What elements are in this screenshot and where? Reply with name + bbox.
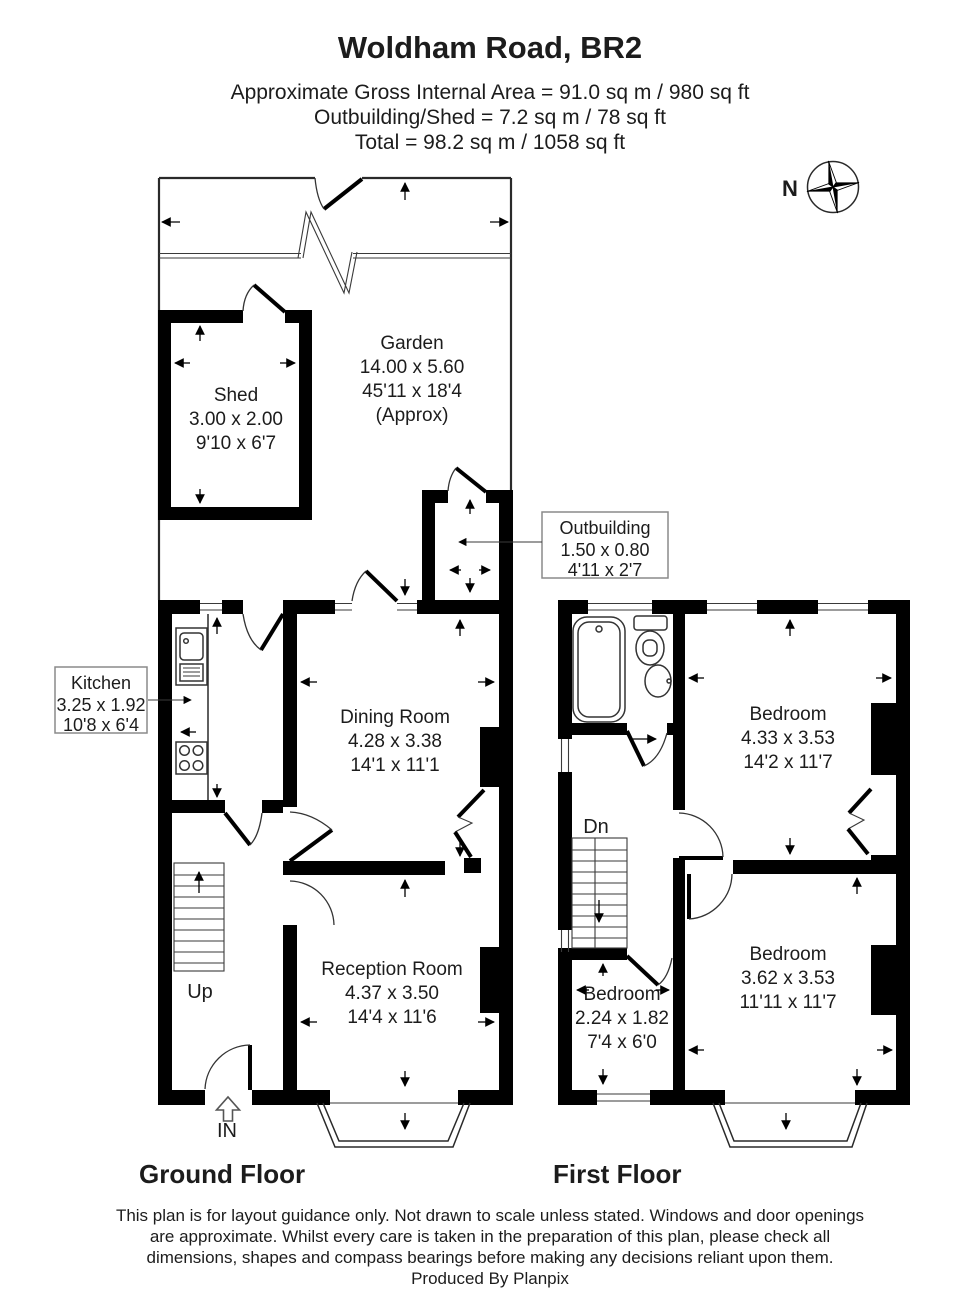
garden-name: Garden — [380, 333, 443, 354]
bathtub-icon — [573, 617, 625, 722]
bedroom-front-name: Bedroom — [749, 704, 826, 725]
dining-room-metric: 4.28 x 3.38 — [348, 731, 442, 752]
chimney-breast — [871, 945, 896, 1015]
first-floor-labels: Bedroom 4.33 x 3.53 14'2 x 11'7 Bedroom … — [575, 704, 837, 1053]
stairs-up-label: Up — [187, 981, 213, 1003]
chimney-breast — [871, 703, 896, 775]
outbuilding-metric: 1.50 x 0.80 — [560, 540, 649, 560]
ground-floor-labels: Dining Room 4.28 x 3.38 14'1 x 11'1 Rece… — [187, 707, 463, 1142]
shed-name: Shed — [214, 385, 258, 406]
gross-area-line: Approximate Gross Internal Area = 91.0 s… — [231, 81, 750, 104]
compass-icon: N — [782, 156, 864, 217]
dining-room-imperial: 14'1 x 11'1 — [350, 755, 439, 776]
bathroom-fixtures — [573, 616, 671, 722]
header: Woldham Road, BR2 Approximate Gross Inte… — [231, 30, 750, 154]
bedroom-back-name: Bedroom — [749, 944, 826, 965]
kitchen-metric: 3.25 x 1.92 — [56, 695, 145, 715]
garden-imperial: 45'11 x 18'4 — [362, 381, 462, 402]
disclaimer-line-4: Produced By Planpix — [411, 1269, 569, 1288]
basin-icon — [645, 665, 671, 697]
hob-icon — [176, 742, 207, 774]
first-floor-stairs — [572, 838, 627, 948]
sink-icon — [176, 628, 207, 685]
bedroom-small-name: Bedroom — [583, 984, 660, 1005]
bedroom-back-imperial: 11'11 x 11'7 — [739, 992, 836, 1013]
ground-floor-label: Ground Floor — [139, 1159, 305, 1189]
kitchen-imperial: 10'8 x 6'4 — [63, 715, 139, 735]
floorplan-page: Woldham Road, BR2 Approximate Gross Inte… — [0, 0, 980, 1313]
toilet-icon — [634, 616, 667, 665]
first-floor-label: First Floor — [553, 1159, 682, 1189]
reception-room-metric: 4.37 x 3.50 — [345, 983, 439, 1004]
disclaimer-line-2: are approximate. Whilst every care is ta… — [150, 1227, 830, 1246]
floorplan-canvas: Woldham Road, BR2 Approximate Gross Inte… — [0, 0, 980, 1313]
shed-imperial: 9'10 x 6'7 — [196, 433, 276, 454]
garden: Garden 14.00 x 5.60 45'11 x 18'4 (Approx… — [159, 178, 511, 600]
page-title: Woldham Road, BR2 — [338, 30, 642, 65]
kitchen-name: Kitchen — [71, 673, 131, 693]
chimney-breast — [480, 947, 499, 1013]
outbuilding: Outbuilding 1.50 x 0.80 4'11 x 2'7 — [422, 468, 668, 602]
outbuilding-area-line: Outbuilding/Shed = 7.2 sq m / 78 sq ft — [314, 106, 666, 129]
entrance-arrow-icon — [217, 1097, 240, 1121]
reception-room-imperial: 14'4 x 11'6 — [347, 1007, 436, 1028]
dining-room-name: Dining Room — [340, 707, 450, 728]
outbuilding-name: Outbuilding — [559, 518, 650, 538]
disclaimer-line-1: This plan is for layout guidance only. N… — [116, 1206, 864, 1225]
entrance-in-label: IN — [217, 1120, 237, 1142]
bay-window — [317, 1103, 470, 1147]
ground-floor-doors — [205, 571, 484, 1090]
shed-metric: 3.00 x 2.00 — [189, 409, 283, 430]
shed: Shed 3.00 x 2.00 9'10 x 6'7 — [158, 285, 312, 520]
compass-north-label: N — [782, 176, 798, 201]
outbuilding-imperial: 4'11 x 2'7 — [568, 560, 643, 580]
bedroom-small-metric: 2.24 x 1.82 — [575, 1008, 669, 1029]
footer: Ground Floor First Floor This plan is fo… — [116, 1159, 864, 1288]
bedroom-back-metric: 3.62 x 3.53 — [741, 968, 835, 989]
ground-dimension-arrows — [162, 183, 508, 1129]
bedroom-front-imperial: 14'2 x 11'7 — [743, 752, 832, 773]
disclaimer-line-3: dimensions, shapes and compass bearings … — [146, 1248, 833, 1267]
kitchen-fixtures — [176, 614, 208, 800]
garden-approx-note: (Approx) — [376, 405, 449, 426]
bedroom-small-imperial: 7'4 x 6'0 — [587, 1032, 657, 1053]
fence-break — [159, 212, 511, 293]
chimney-breast — [480, 727, 499, 787]
bay-window — [713, 1103, 867, 1147]
bifold-doors — [848, 789, 871, 854]
bedroom-front-metric: 4.33 x 3.53 — [741, 728, 835, 749]
garden-metric: 14.00 x 5.60 — [360, 357, 465, 378]
ground-floor-stairs — [174, 863, 224, 971]
reception-room-name: Reception Room — [321, 959, 463, 980]
total-area-line: Total = 98.2 sq m / 1058 sq ft — [355, 131, 625, 154]
stairs-dn-label: Dn — [583, 816, 609, 838]
